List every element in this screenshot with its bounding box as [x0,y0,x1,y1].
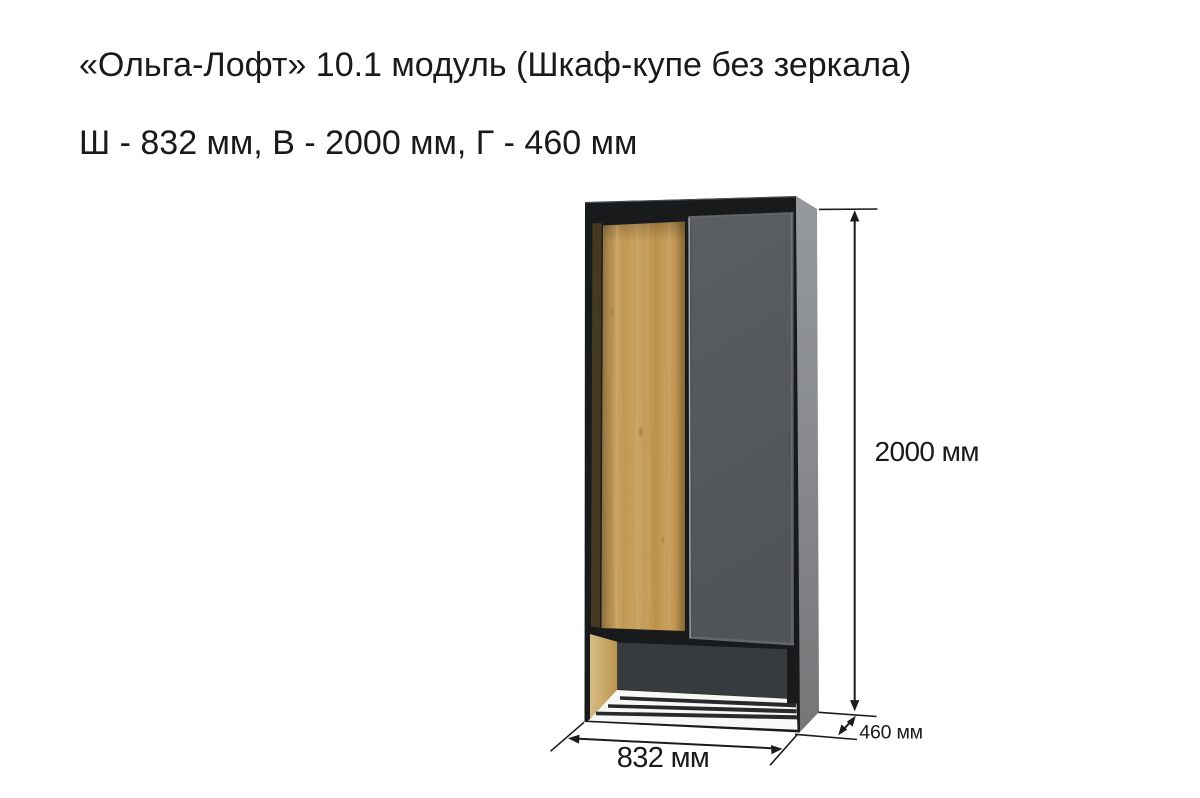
svg-text:832 мм: 832 мм [617,742,709,774]
svg-text:2000 мм: 2000 мм [875,436,979,467]
svg-text:460 мм: 460 мм [859,721,923,743]
